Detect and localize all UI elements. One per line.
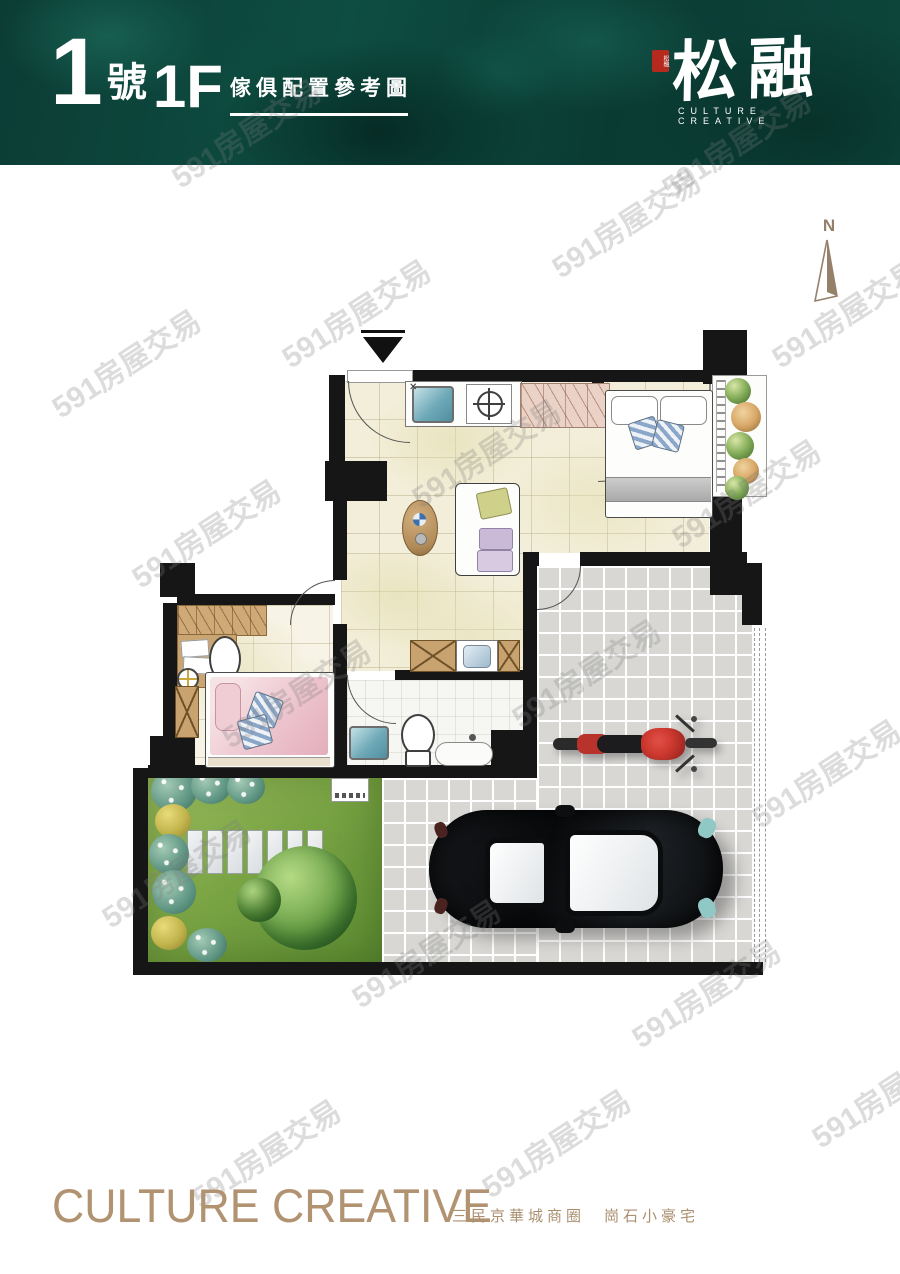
wall-garden-left	[133, 768, 148, 964]
vanity-papers	[180, 639, 209, 658]
unit-suffix: 號	[107, 50, 147, 108]
washer-glass	[463, 645, 491, 668]
moto-tank	[641, 728, 685, 760]
side-cabinet	[175, 686, 199, 738]
single-bed	[205, 672, 335, 768]
seal-stamp-icon: 松融	[652, 50, 669, 72]
wall-corridor-right	[523, 566, 537, 765]
wall-left-mid	[333, 501, 347, 564]
balcony-plant	[725, 378, 751, 404]
north-arrow-icon	[812, 238, 846, 304]
shrub-yellow	[151, 916, 187, 950]
shower-block	[491, 730, 523, 768]
faucet-mark: ✕	[409, 382, 417, 393]
wall-left-upper	[329, 375, 345, 461]
moto-front-wheel	[685, 738, 717, 748]
compass: N	[806, 216, 852, 304]
property-line-mid	[759, 628, 761, 962]
wall-bottom	[133, 962, 763, 975]
wall-pillar-block-top	[160, 563, 195, 597]
storage-cabinet	[410, 640, 456, 672]
tub-faucet-icon	[469, 734, 476, 741]
blanket	[606, 477, 711, 502]
wall-patio-top-a	[523, 552, 539, 566]
shrub	[152, 870, 196, 914]
table-item	[415, 533, 427, 545]
balcony-plant	[731, 402, 761, 432]
underline-rule	[230, 113, 408, 116]
entrance-arrow-icon	[363, 337, 403, 363]
shrub-yellow	[155, 804, 191, 838]
table-decor-icon	[413, 513, 426, 526]
step-grille	[331, 778, 369, 802]
watermark: 591房屋交易	[802, 1027, 900, 1157]
unit-number: 1	[50, 34, 101, 112]
wall-bath-left	[333, 670, 347, 765]
stepping-stone	[227, 830, 243, 874]
plan-type-text: 傢俱配置參考圖	[230, 72, 412, 102]
car-rear-window	[485, 838, 549, 908]
garden-tree-lobe	[237, 878, 281, 922]
wall-hall-left-b	[333, 624, 347, 670]
master-bed	[605, 390, 713, 518]
sofa-cushion-green	[476, 487, 513, 520]
footer-subtitle: 三民京華城商圈 崗石小豪宅	[452, 1205, 699, 1226]
car-mirror	[555, 805, 575, 817]
cushion	[651, 419, 685, 453]
kitchen-sink	[412, 386, 454, 423]
wall-pillar-jog	[150, 736, 195, 768]
bathroom-sink	[349, 726, 389, 760]
shrub	[187, 928, 227, 962]
stove-cross-v	[488, 388, 490, 420]
balcony-plant	[725, 476, 749, 500]
unit-title: 1 號 1F	[50, 34, 223, 112]
sofa-cushion-purple	[477, 550, 513, 572]
bedroom2-wardrobe	[177, 605, 267, 636]
moto-mirror	[691, 716, 697, 722]
storage-cabinet	[498, 640, 520, 672]
footer-title: CULTURE CREATIVE	[52, 1178, 492, 1233]
toilet-tank	[405, 750, 431, 767]
floor-plan: ✕	[125, 318, 790, 978]
watermark: 591房屋交易	[542, 157, 709, 287]
bathtub	[435, 742, 493, 766]
sofa-cushion-purple	[479, 528, 513, 550]
washing-machine	[456, 640, 498, 672]
motorcycle	[545, 710, 710, 776]
grille-marks	[335, 793, 365, 798]
entrance-bar	[361, 330, 405, 333]
wall-hall-left-a	[333, 564, 347, 580]
shrub	[149, 834, 189, 874]
car-windshield	[565, 830, 663, 916]
round-table	[402, 500, 438, 556]
balcony-plant	[726, 432, 754, 460]
north-label: N	[806, 216, 852, 236]
bedroom2-door-arc	[290, 580, 335, 625]
balcony-railing	[716, 380, 726, 492]
brand-logo: 松融 松融 CULTURE CREATIVE	[648, 36, 858, 126]
gas-stove	[466, 384, 512, 424]
sofa	[455, 483, 520, 576]
floor-label: 1F	[153, 61, 223, 112]
stepping-stone	[187, 830, 203, 874]
car	[427, 806, 725, 932]
stepping-stone	[247, 830, 263, 874]
moto-mirror	[691, 766, 697, 772]
brand-calligraphy: 松融	[671, 33, 858, 106]
wall-pillar-right-step	[742, 563, 762, 625]
header-banner: 1 號 1F 傢俱配置參考圖 松融 松融 CULTURE CREATIVE	[0, 0, 900, 165]
wardrobe	[520, 383, 610, 428]
plan-type-label: 傢俱配置參考圖	[230, 72, 412, 116]
stepping-stone	[207, 830, 223, 874]
bed-footboard	[208, 757, 330, 766]
watermark: 591房屋交易	[472, 1077, 639, 1207]
wall-left-jog	[325, 461, 387, 501]
car-mirror	[555, 921, 575, 933]
